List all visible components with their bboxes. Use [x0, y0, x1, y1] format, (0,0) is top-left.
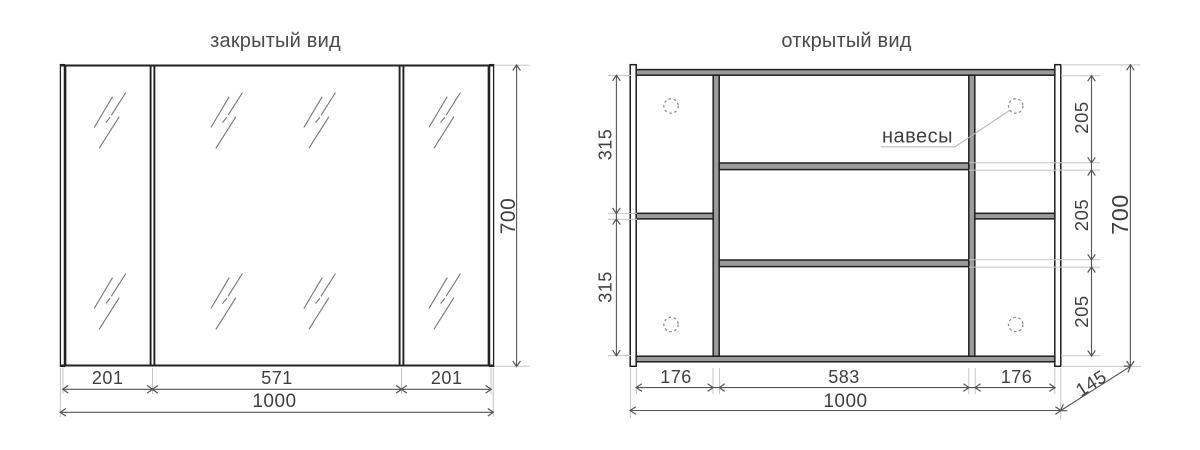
svg-text:176: 176: [1001, 367, 1033, 387]
svg-text:205: 205: [1071, 199, 1092, 231]
svg-text:201: 201: [92, 368, 124, 388]
svg-text:571: 571: [261, 368, 293, 388]
svg-text:205: 205: [1071, 295, 1092, 327]
svg-text:205: 205: [1071, 101, 1092, 133]
svg-text:176: 176: [660, 367, 692, 387]
svg-text:700: 700: [497, 198, 520, 235]
svg-text:навесы: навесы: [882, 126, 953, 148]
svg-text:145: 145: [1072, 365, 1111, 400]
svg-text:открытый вид: открытый вид: [781, 30, 911, 52]
svg-text:315: 315: [595, 129, 615, 161]
svg-text:1000: 1000: [252, 391, 296, 412]
svg-text:315: 315: [595, 271, 615, 303]
svg-text:583: 583: [828, 367, 860, 387]
svg-text:700: 700: [1107, 194, 1133, 235]
svg-text:закрытый вид: закрытый вид: [210, 30, 341, 52]
svg-text:1000: 1000: [823, 391, 867, 412]
svg-text:201: 201: [431, 368, 463, 388]
